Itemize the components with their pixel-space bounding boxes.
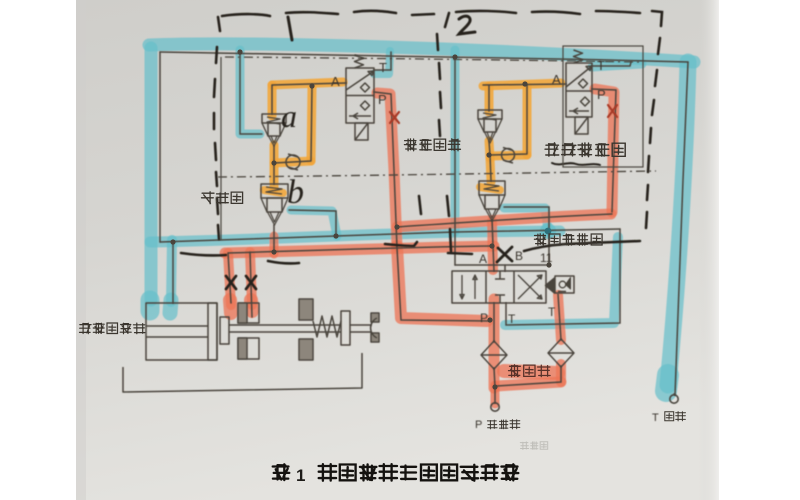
svg-text:b: b (287, 174, 304, 211)
svg-text:A: A (479, 252, 487, 266)
svg-text:B: B (515, 249, 523, 263)
svg-text:T: T (597, 58, 605, 73)
svg-text:P: P (475, 419, 482, 431)
svg-text:P: P (480, 311, 488, 325)
svg-text:T: T (508, 312, 516, 326)
svg-text:11: 11 (540, 251, 553, 265)
svg-text:T: T (652, 412, 659, 424)
svg-text:T: T (548, 305, 556, 319)
svg-text:a: a (281, 98, 297, 134)
svg-text:T: T (379, 60, 387, 75)
svg-text:P: P (597, 87, 606, 102)
svg-text:1: 1 (296, 466, 305, 485)
svg-text:A: A (552, 72, 561, 87)
svg-text:P: P (378, 92, 387, 107)
svg-text:A: A (331, 74, 340, 89)
